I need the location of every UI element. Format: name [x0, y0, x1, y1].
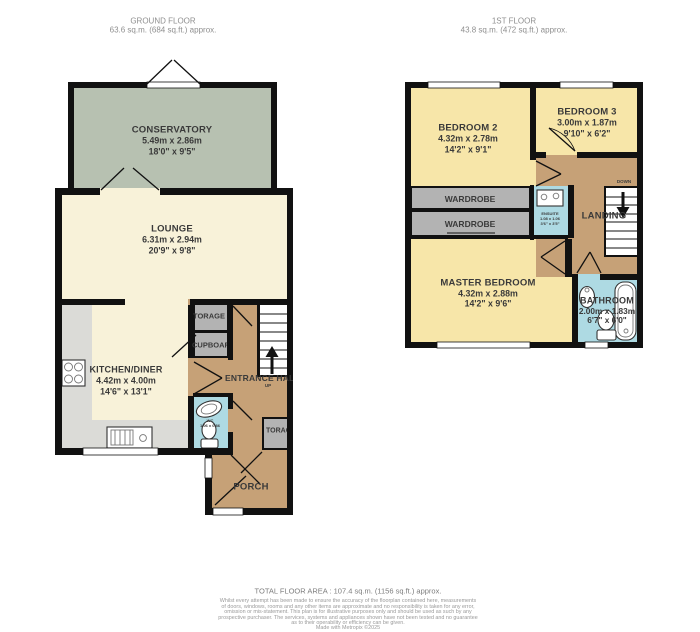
first-floor-title: 1ST FLOOR	[492, 17, 536, 26]
master-window	[437, 342, 530, 348]
master-bedroom-label: MASTER BEDROOM	[440, 278, 535, 288]
down-label: DOWN	[617, 180, 631, 185]
ensuite-dims-imperial: 3'6" x 3'5"	[540, 222, 559, 226]
bedroom2-dims-imperial: 14'2" x 9'1"	[445, 146, 492, 155]
porch-label: PORCH	[233, 482, 268, 492]
storage-top-label: TORAGE	[193, 312, 227, 320]
entrance-hall-label: ENTRANCE HALL	[225, 374, 293, 383]
conservatory-label: CONSERVATORY	[132, 125, 213, 135]
credit-line: Made with Metropix ©2025	[316, 625, 380, 631]
cupboard-label: CUPBOARD	[192, 341, 227, 349]
landing-label: LANDING	[582, 211, 627, 221]
bedroom2-window	[428, 82, 500, 88]
wardrobe1-label: WARDROBE	[445, 195, 496, 204]
bedroom2-label: BEDROOM 2	[438, 123, 497, 133]
bathroom-window	[585, 342, 608, 348]
wardrobe2-label: WARDROBE	[445, 220, 496, 229]
bedroom3-dims-metric: 3.00m x 1.87m	[557, 119, 617, 128]
wc-dims: 1.06 x 0.86	[200, 424, 220, 428]
kitchen-room	[92, 305, 188, 420]
garden-door-opening	[147, 82, 200, 88]
master-dims-metric: 4.32m x 2.88m	[458, 290, 518, 299]
lounge-dims-imperial: 20'9" x 9'8"	[149, 247, 196, 256]
bedroom3-dims-imperial: 9'10" x 6'2"	[564, 130, 611, 139]
first-floor-area: 43.8 sq.m. (472 sq.ft.) approx.	[461, 26, 568, 35]
conservatory-dims-imperial: 18'0" x 9'5"	[149, 148, 196, 157]
total-floor-area: TOTAL FLOOR AREA : 107.4 sq.m. (1156 sq.…	[255, 587, 442, 596]
front-door-opening	[213, 508, 243, 515]
boiler-icon	[537, 190, 563, 206]
lounge-label: LOUNGE	[151, 224, 193, 234]
bathroom-label: BATHROOM	[580, 297, 634, 306]
kitchen-label: KITCHEN/DINER	[89, 366, 162, 375]
up-label: UP	[265, 384, 271, 389]
floorplan-page: { "ground": { "header": {"title": "GROUN…	[0, 0, 700, 632]
kitchen-dims-metric: 4.42m x 4.00m	[96, 377, 156, 386]
kitchen-sink-icon	[107, 427, 152, 448]
bedroom2-dims-metric: 4.32m x 2.78m	[438, 135, 498, 144]
bedroom3-window	[560, 82, 613, 88]
bedroom3-label: BEDROOM 3	[557, 107, 616, 117]
ground-floor-title: GROUND FLOOR	[130, 17, 195, 26]
lounge-dims-metric: 6.31m x 2.94m	[142, 236, 202, 245]
kitchen-dims-imperial: 14'6" x 13'1"	[100, 388, 152, 397]
conservatory-dims-metric: 5.49m x 2.86m	[142, 137, 202, 146]
kitchen-window	[83, 448, 158, 455]
bathroom-dims-imperial: 6'7" x 6'0"	[587, 316, 627, 324]
master-dims-imperial: 14'2" x 9'6"	[465, 300, 512, 309]
ground-floor-area: 63.6 sq.m. (684 sq.ft.) approx.	[110, 26, 217, 35]
porch-window	[205, 458, 212, 478]
hob-icon	[62, 360, 85, 386]
storage-bottom-label: TORAG	[266, 428, 287, 435]
